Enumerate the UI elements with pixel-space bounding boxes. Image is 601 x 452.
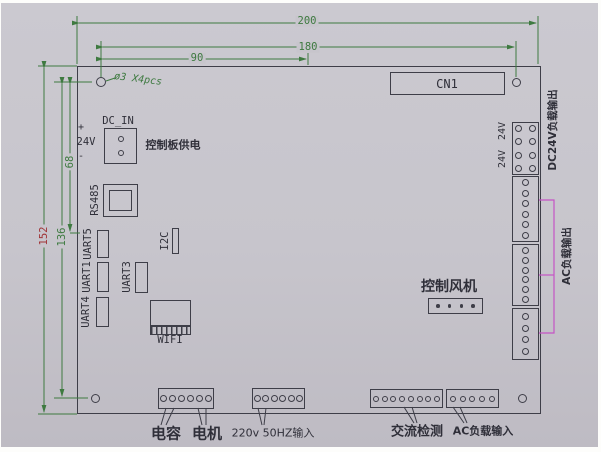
pin bbox=[390, 396, 396, 402]
ac-detect-label: 交流检测 bbox=[391, 426, 443, 439]
pin bbox=[254, 395, 261, 402]
pin bbox=[515, 138, 522, 145]
uart3-connector bbox=[135, 262, 148, 293]
pin bbox=[178, 395, 185, 402]
uart5-connector bbox=[97, 230, 109, 258]
pin bbox=[471, 304, 475, 308]
pin bbox=[169, 395, 176, 402]
v24-lower-label: 24V bbox=[498, 150, 508, 168]
pin bbox=[460, 396, 466, 402]
pin bbox=[529, 152, 536, 159]
ac-output-label: AC负载输出 bbox=[562, 227, 573, 285]
pin bbox=[522, 200, 529, 207]
pin bbox=[271, 395, 278, 402]
uart5-label: UART5 bbox=[83, 228, 94, 260]
dc-in-pins bbox=[104, 128, 137, 164]
rs485-connector-inner bbox=[109, 190, 132, 211]
cn1-label: CN1 bbox=[436, 78, 458, 90]
pin bbox=[382, 396, 388, 402]
pin bbox=[522, 313, 529, 320]
pin bbox=[399, 396, 405, 402]
mounting-hole-top-right bbox=[512, 78, 521, 87]
dc24v-output-label: DC24V负载输出 bbox=[548, 89, 559, 170]
pin bbox=[522, 211, 529, 218]
pin bbox=[522, 276, 529, 283]
mounting-hole-top-left bbox=[96, 77, 106, 87]
ac-load-input-pins bbox=[446, 389, 499, 408]
screenshot-canvas: 200 180 90 152 136 68 ø3 X4pcs CN1 DC_IN… bbox=[0, 0, 601, 452]
pin bbox=[187, 395, 194, 402]
motor-label: 电机 bbox=[192, 427, 222, 442]
pin bbox=[489, 396, 495, 402]
pin bbox=[118, 136, 124, 142]
pin bbox=[522, 336, 529, 343]
pin bbox=[522, 286, 529, 293]
ac-output-pins-1 bbox=[512, 176, 539, 242]
mains-input-label: 220v 50HZ输入 bbox=[232, 428, 315, 439]
pin bbox=[373, 396, 379, 402]
pin bbox=[469, 396, 475, 402]
pin bbox=[522, 190, 529, 197]
pin bbox=[522, 179, 529, 186]
pin bbox=[515, 152, 522, 159]
dim-width-180: 180 bbox=[297, 42, 320, 53]
pin bbox=[425, 396, 431, 402]
ac-output-pins-3 bbox=[512, 308, 539, 360]
pin bbox=[522, 257, 529, 264]
i2c-label: I2C bbox=[160, 232, 171, 251]
pin bbox=[205, 395, 212, 402]
dim-height-total: 152 bbox=[39, 225, 50, 248]
pin bbox=[408, 396, 414, 402]
pin bbox=[448, 304, 452, 308]
pcb-board-outline bbox=[77, 66, 541, 414]
pin bbox=[288, 395, 295, 402]
capacitor-motor-pins bbox=[158, 388, 214, 409]
ac-output-pins-2 bbox=[512, 244, 539, 306]
mounting-hole-bottom-right bbox=[518, 394, 527, 403]
uart1-connector bbox=[97, 262, 109, 292]
pin bbox=[522, 221, 529, 228]
v24-upper-label: 24V bbox=[498, 122, 508, 140]
pin bbox=[522, 267, 529, 274]
wifi-module bbox=[150, 300, 191, 326]
mains-input-pins bbox=[252, 388, 305, 409]
dim-height-136: 136 bbox=[57, 226, 68, 249]
capacitor-label: 电容 bbox=[151, 427, 181, 442]
pin bbox=[522, 247, 529, 254]
dc24v-output-pins bbox=[512, 122, 539, 175]
dc-in-minus: - bbox=[78, 152, 84, 162]
pin bbox=[434, 396, 440, 402]
pin bbox=[522, 348, 529, 355]
wifi-label: WIFI bbox=[157, 335, 182, 346]
ac-load-input-label: AC负载输入 bbox=[453, 426, 514, 437]
pin bbox=[160, 395, 167, 402]
pin bbox=[529, 165, 536, 172]
pin bbox=[417, 396, 423, 402]
fan-control-label: 控制风机 bbox=[421, 280, 477, 294]
dc-in-label: DC_IN bbox=[102, 116, 134, 127]
uart3-label: UART3 bbox=[122, 261, 133, 293]
pin bbox=[296, 395, 303, 402]
pin bbox=[196, 395, 203, 402]
pin bbox=[515, 125, 522, 132]
dc-in-voltage: 24V bbox=[77, 137, 96, 148]
dim-width-90: 90 bbox=[189, 53, 206, 64]
dim-height-68: 68 bbox=[65, 154, 76, 171]
pin bbox=[522, 325, 529, 332]
pin bbox=[118, 150, 124, 156]
uart1-label: UART1 bbox=[82, 261, 93, 293]
pin bbox=[279, 395, 286, 402]
pin bbox=[479, 396, 485, 402]
uart4-label: UART4 bbox=[81, 296, 92, 328]
rs485-label: RS485 bbox=[90, 184, 101, 216]
dc-in-note: 控制板供电 bbox=[146, 140, 201, 151]
pin bbox=[262, 395, 269, 402]
dim-width-total: 200 bbox=[296, 16, 319, 27]
mounting-hole-bottom-left bbox=[91, 394, 100, 403]
pin bbox=[515, 165, 522, 172]
pin bbox=[460, 304, 464, 308]
uart4-connector bbox=[96, 297, 109, 327]
pin bbox=[450, 396, 456, 402]
pin bbox=[529, 125, 536, 132]
ac-detect-pins bbox=[370, 389, 443, 408]
dc-in-plus: + bbox=[78, 123, 84, 133]
fan-pins bbox=[428, 298, 483, 314]
pin bbox=[522, 232, 529, 239]
i2c-connector bbox=[172, 228, 179, 254]
pin bbox=[436, 304, 440, 308]
pin bbox=[522, 296, 529, 303]
pin bbox=[529, 138, 536, 145]
